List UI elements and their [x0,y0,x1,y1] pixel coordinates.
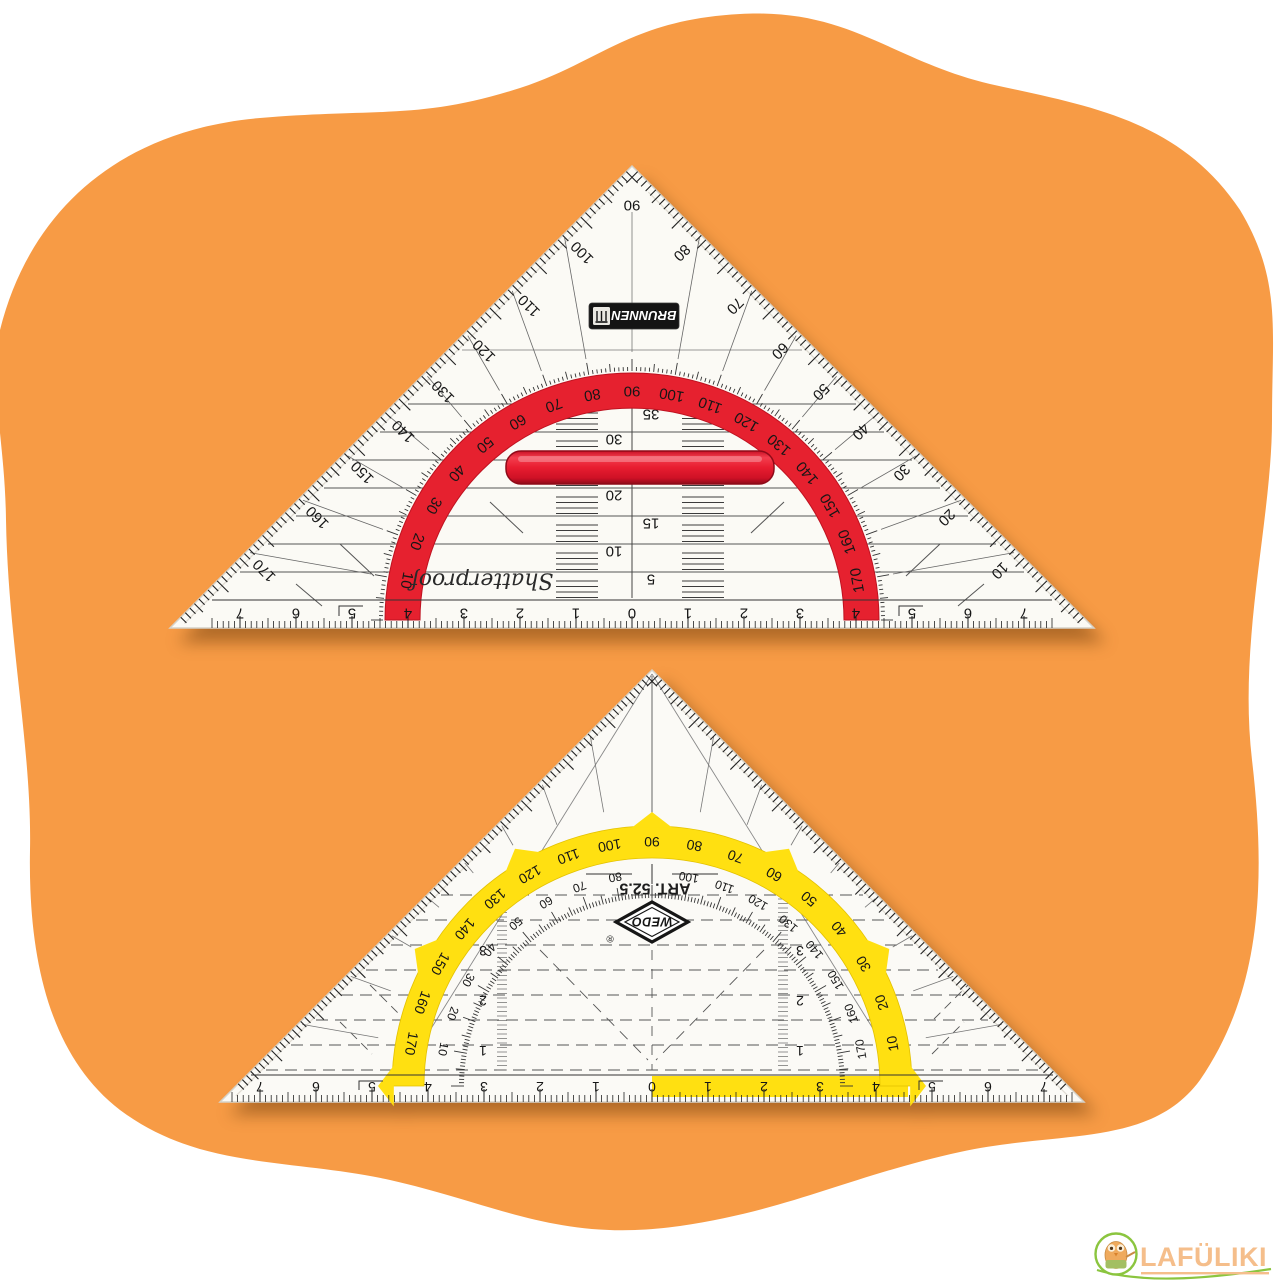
svg-text:90: 90 [624,383,641,400]
svg-text:6: 6 [964,605,972,622]
svg-text:3: 3 [480,1079,488,1095]
svg-text:15: 15 [643,515,660,532]
svg-text:80: 80 [583,385,602,405]
product-photo: 5101520303510203040506070809010011012013… [0,0,1280,1280]
svg-text:4: 4 [872,1079,880,1095]
brand-name-label: BRUNNEN [611,308,677,323]
tagline-shatterproof: Shatterproof [407,568,554,593]
svg-text:7: 7 [256,1079,264,1095]
svg-text:10: 10 [883,1034,901,1052]
svg-text:30: 30 [606,431,623,448]
svg-text:3: 3 [796,943,804,959]
svg-text:5: 5 [908,605,916,622]
svg-text:5: 5 [348,605,356,622]
svg-text:10: 10 [606,543,623,560]
svg-text:1: 1 [479,1043,487,1059]
svg-text:3: 3 [816,1079,824,1095]
svg-text:2: 2 [760,1079,768,1095]
grip-handle [506,451,774,484]
svg-text:2: 2 [479,993,487,1009]
svg-text:1: 1 [684,605,692,622]
svg-text:4: 4 [852,605,860,622]
svg-text:1: 1 [704,1079,712,1095]
svg-text:20: 20 [606,487,623,504]
product-photo-canvas: 5101520303510203040506070809010011012013… [0,0,1280,1280]
svg-text:6: 6 [292,605,300,622]
svg-text:80: 80 [685,836,703,854]
svg-text:7: 7 [236,605,244,622]
svg-text:2: 2 [740,605,748,622]
svg-text:1: 1 [796,1043,804,1059]
svg-text:2: 2 [516,605,524,622]
svg-text:1: 1 [572,605,580,622]
registered-mark: ® [606,933,614,944]
svg-text:6: 6 [984,1079,992,1095]
svg-text:90: 90 [624,197,641,214]
svg-text:4: 4 [404,605,412,622]
svg-text:3: 3 [796,605,804,622]
svg-text:10: 10 [435,1041,451,1057]
svg-text:0: 0 [648,1079,656,1095]
svg-text:3: 3 [460,605,468,622]
svg-text:2: 2 [536,1079,544,1095]
article-number: ART. 52.5 [619,880,690,897]
svg-text:4: 4 [424,1079,432,1095]
brand-name-label: WEDO [632,915,673,929]
svg-text:7: 7 [1020,605,1028,622]
svg-text:1: 1 [592,1079,600,1095]
svg-text:0: 0 [628,605,636,622]
watermark-text-underline [1141,1272,1269,1274]
ruler-highlight-strip [652,1076,908,1097]
svg-text:90: 90 [644,834,660,850]
svg-text:7: 7 [1040,1079,1048,1095]
svg-text:5: 5 [647,571,655,588]
svg-text:2: 2 [796,993,804,1009]
brand-logo-brunnen: BRUNNEN [589,303,679,329]
watermark-text: LAFÜLIKI [1140,1242,1267,1272]
svg-text:6: 6 [312,1079,320,1095]
mascot-icon [1096,1234,1137,1275]
